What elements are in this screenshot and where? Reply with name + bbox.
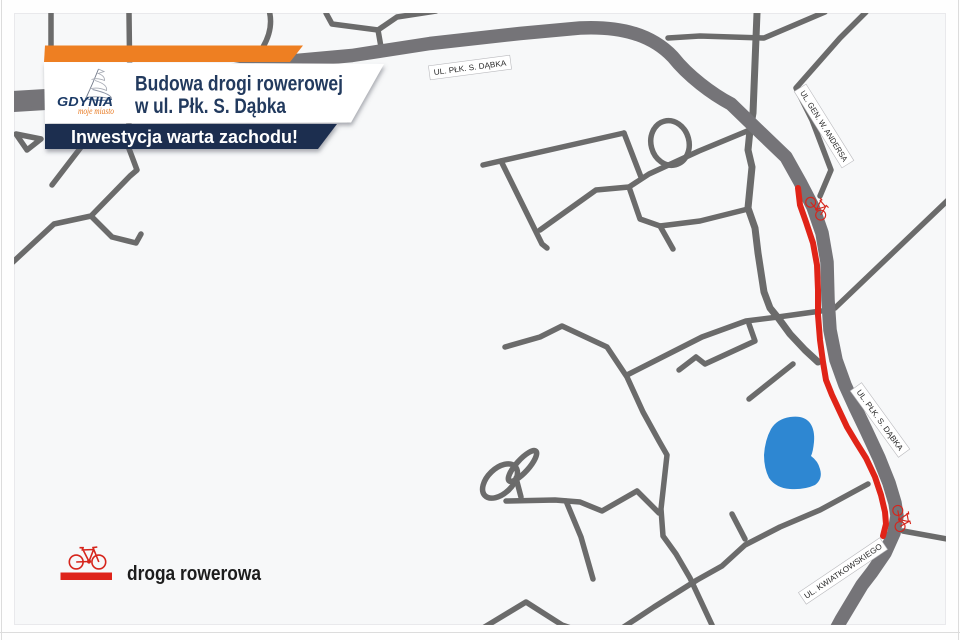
svg-text:moje miasto: moje miasto bbox=[78, 106, 114, 116]
svg-text:w ul. Płk. S. Dąbka: w ul. Płk. S. Dąbka bbox=[134, 94, 287, 118]
svg-text:droga rowerowa: droga rowerowa bbox=[127, 563, 262, 585]
svg-text:Budowa drogi rowerowej: Budowa drogi rowerowej bbox=[135, 72, 343, 96]
svg-text:Inwestycja warta zachodu!: Inwestycja warta zachodu! bbox=[71, 126, 298, 147]
